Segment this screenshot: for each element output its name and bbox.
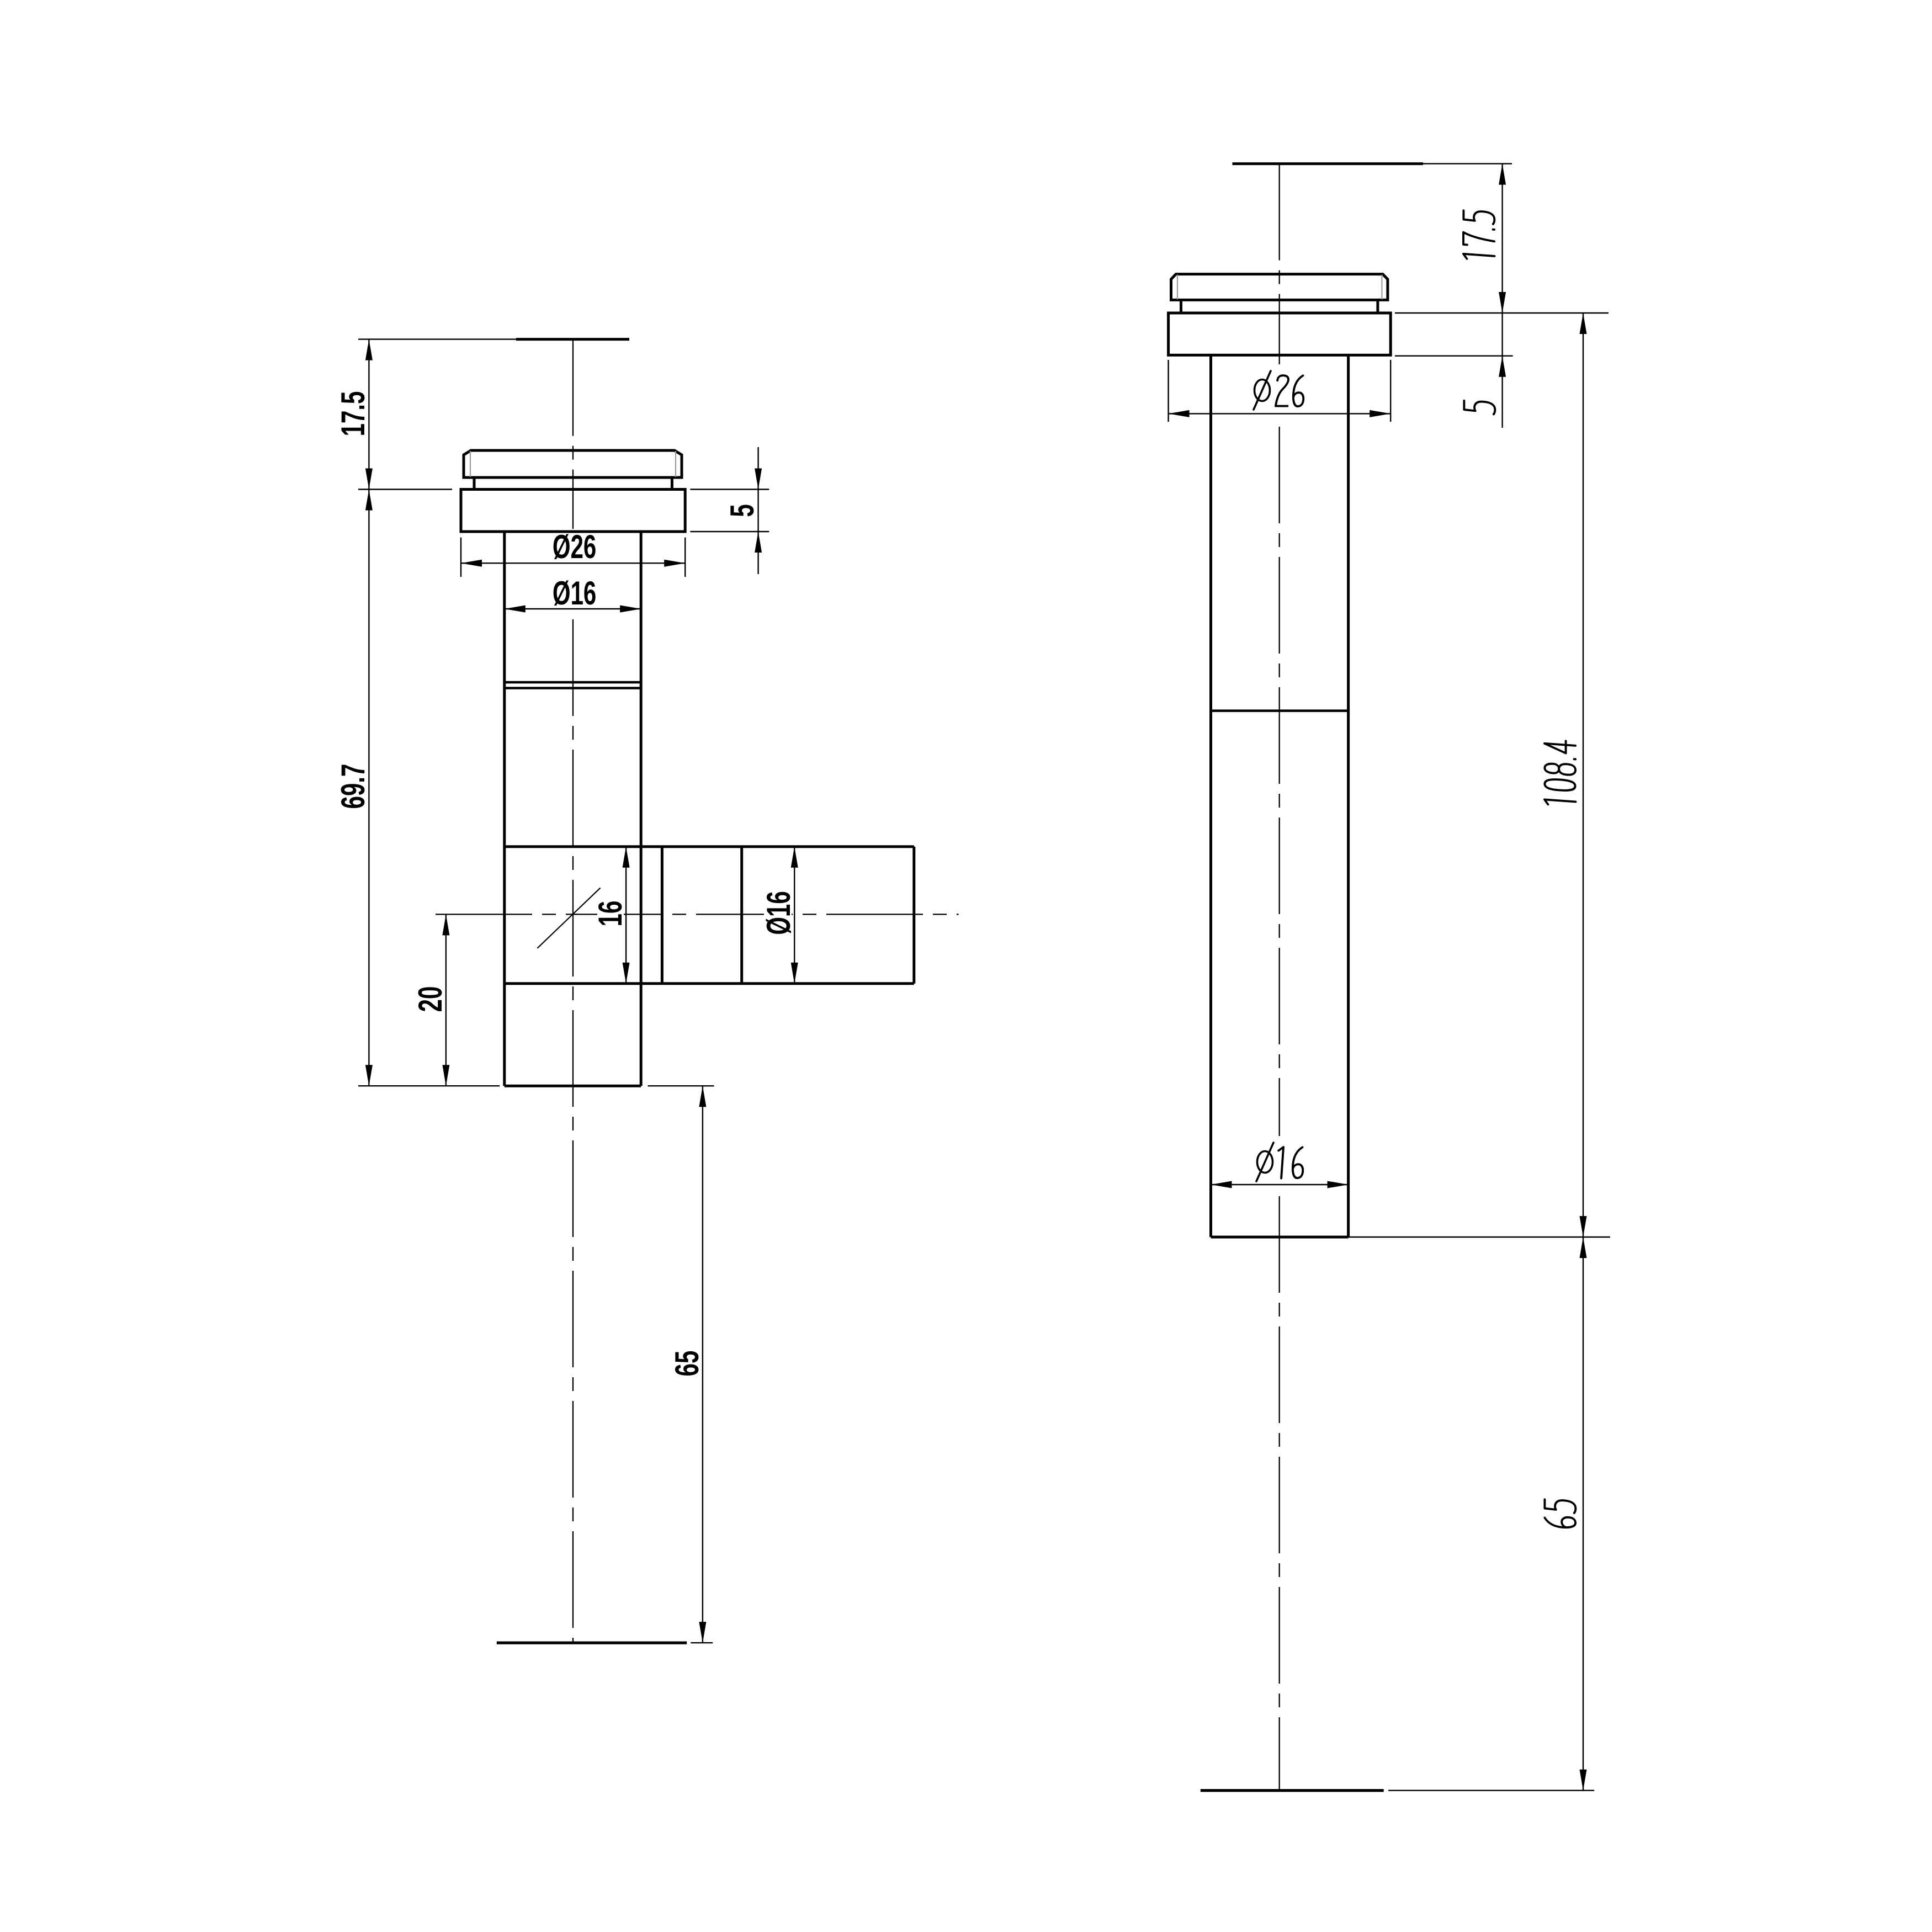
svg-text:5: 5 (724, 504, 761, 517)
svg-text:Ø16: Ø16 (760, 891, 797, 935)
svg-text:17.5: 17.5 (335, 391, 371, 437)
svg-text:Ø26: Ø26 (553, 528, 596, 565)
svg-text:20: 20 (412, 986, 449, 1012)
svg-text:16: 16 (592, 901, 629, 927)
svg-text:Ø16: Ø16 (553, 574, 596, 611)
svg-text:69.7: 69.7 (335, 764, 371, 809)
svg-text:65: 65 (668, 1351, 705, 1377)
